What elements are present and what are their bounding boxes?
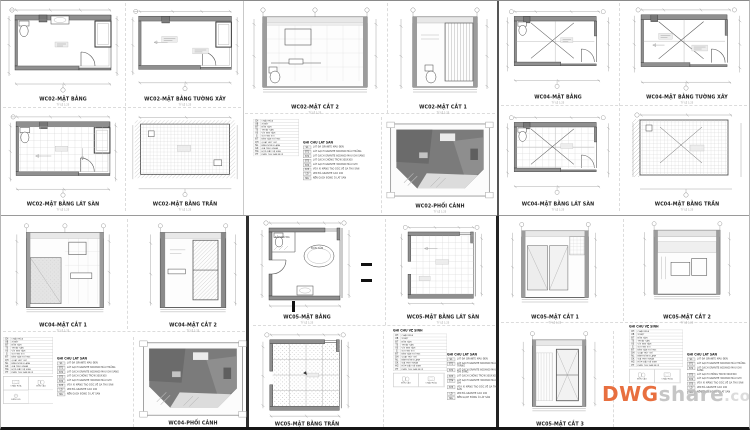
divider-vertical-right-top [497,1,499,216]
room-labels-overlay: TẮM ĐỨNG BỒN TẮM [257,218,357,312]
section-cut-mark [292,301,295,312]
svg-text:WC04-MẶT BẰNG: WC04-MẶT BẰNG [534,93,582,101]
watermark-suffix: share [659,382,725,406]
drawing-title: WC02-MẶT CẮT 2TỶ LỆ 1:25 [249,103,381,116]
svg-text:WC04-MẶT CẮT 2: WC04-MẶT CẮT 2 [169,321,217,329]
legend-title: GHI CHÚ VỆ SINH [393,329,447,332]
legend-title: GHI CHÚ LÁT SÀN [687,353,747,356]
cad-drawing-sheet: WC02-MẶT BẰNGTỶ LỆ 1:25 WC02-MẶT BẰNG TƯ… [0,0,750,430]
drawing-title: WC02-MẶT BẰNG TƯỜNG XÂYTỶ LỆ 1:25 [129,95,241,108]
legend-row: ST1LÁT GẠCH GRANITE 600X600 MÀU TRẮNG [687,362,747,365]
svg-text:TỶ LỆ 1:25: TỶ LỆ 1:25 [179,104,192,107]
legend-ve-sinh-table: CHCHẬU RỬAXBXÍ BỆTBTBỒN TẮMTSTHOÁT SÀNVS… [3,337,53,429]
legend-title: GHI CHÚ LÁT SÀN [57,357,133,360]
legend-row: PTPHỄU THU SÀN INOX [3,371,53,374]
cell-separator [385,219,386,325]
drawing-wc02-phoi-canh [385,119,495,201]
legend-lat-san: GHI CHÚ LÁT SÀN S1LÁT ĐÁ GRANITE MÀU ĐEN… [57,357,133,423]
legend-row: ST5VỮA XI MĂNG TẠO DỐC VỀ GA THU SÀN [447,386,499,391]
legend-ve-sinh: GHI CHÚ VỆ SINH CHCHẬU RỬAXBXÍ BỆTBTBỒN … [393,329,447,429]
legend-fixture-icons: BỒN CẦU CHẬU RỬA [393,373,445,387]
legend-row: ST2LÁT GẠCH GRANITE 600X600 MÀU GHI SÁNG [57,371,133,374]
svg-text:WC02-MẶT BẰNG TRẦN: WC02-MẶT BẰNG TRẦN [153,199,217,208]
legend-row: ST1LÁT GẠCH GRANITE 600X600 MÀU TRẮNG [303,150,379,153]
svg-text:WC05-MẶT CẮT 1: WC05-MẶT CẮT 1 [531,313,579,321]
legend-row: LDLEN ĐÁ GRANITE CAO 100 [447,392,499,395]
legend-lat-san: GHI CHÚ LÁT SÀN S1LÁT ĐÁ GRANITE MÀU ĐEN… [447,353,499,417]
section-cut-mark [361,279,372,282]
svg-text:TỶ LỆ 1:25: TỶ LỆ 1:25 [681,102,694,105]
svg-text:TỶ LỆ 1:25: TỶ LỆ 1:25 [57,209,70,212]
svg-text:WC05-MẶT BẰNG TRẦN: WC05-MẶT BẰNG TRẦN [275,419,339,428]
drawing-wc05-mat-cat-2 [637,219,737,313]
drawing-title: WC04-MẶT BẰNG LÁT SÀNTỶ LỆ 1:25 [503,200,613,213]
drawing-wc02-mat-bang-tuong-xay [129,6,241,94]
svg-text:TỶ LỆ 1:25: TỶ LỆ 1:25 [57,330,70,333]
svg-text:TỶ LỆ 1:25: TỶ LỆ 1:25 [549,322,562,325]
drawing-title: WC02-MẶT BẰNG LÁT SÀNTỶ LỆ 1:25 [5,200,121,213]
svg-text:TẮM ĐỨNG: TẮM ĐỨNG [275,234,290,239]
svg-text:TỶ LỆ 1:25: TỶ LỆ 1:25 [552,102,565,105]
legend-row: LDLEN ĐÁ GRANITE CAO 100 [303,172,379,175]
drawing-title: WC04-MẶT CẮT 1TỶ LỆ 1:25 [9,321,117,334]
legend-row: ST3LÁT GẠCH CHỐNG TRƠN 300X300 [687,373,747,376]
legend-row: ST3LÁT GẠCH CHỐNG TRƠN 300X300 [303,159,379,162]
svg-text:TỶ LỆ 1:25: TỶ LỆ 1:25 [437,322,450,325]
drawing-wc04-phoi-canh [137,339,249,419]
legend-row: ST1LÁT GẠCH GRANITE 600X600 MÀU TRẮNG [447,362,499,367]
svg-text:BỒN TẮM: BỒN TẮM [311,245,323,250]
drawing-wc02-mat-bang-lat-san [5,113,121,199]
svg-text:WC04-MẶT BẰNG LÁT SÀN: WC04-MẶT BẰNG LÁT SÀN [522,200,595,208]
legend-row: ST5VỮA XI MĂNG TẠO DỐC VỀ GA THU SÀN [303,168,379,171]
drawing-title: WC04-MẶT CẮT 2TỶ LỆ 1:25 [141,321,245,334]
legend-row: S1LÁT ĐÁ GRANITE MÀU ĐEN [57,362,133,365]
svg-text:WC05-MẶT BẰNG LÁT SÀN: WC05-MẶT BẰNG LÁT SÀN [407,313,480,321]
drawing-wc02-mat-cat-1 [393,5,493,103]
svg-text:WC05-MẶT CẮT 2: WC05-MẶT CẮT 2 [663,313,711,321]
cell-separator [133,337,134,427]
drawing-wc02-mat-cat-2 [249,5,381,103]
drawing-title: WC04-PHỐI CẢNHTỶ LỆ 1:25 [137,419,249,430]
svg-text:WC02-MẶT CẮT 2: WC02-MẶT CẮT 2 [291,103,339,111]
drawing-title: WC05-MẶT CẮT 1TỶ LỆ 1:25 [507,313,603,326]
legend-title: GHI CHÚ VỆ SINH [629,325,683,328]
drawing-title: WC05-MẶT CẮT 3TỶ LỆ 1:25 [517,420,603,430]
drawing-wc02-mat-bang [5,6,121,94]
legend-row: ST2LÁT GẠCH GRANITE 600X600 MÀU GHI SÁNG [687,367,747,372]
cell-separator [381,117,382,213]
svg-text:TỶ LỆ 1:25: TỶ LỆ 1:25 [552,209,565,212]
svg-text:WC02-MẶT CẮT 1: WC02-MẶT CẮT 1 [419,103,467,111]
drawing-title: WC04-MẶT BẰNG TRẦNTỶ LỆ 1:25 [626,200,748,213]
legend-ve-sinh: GHI CHÚ VỆ SINH CHCHẬU RỬAXBXÍ BỆTBTBỒN … [629,325,683,425]
drawing-wc05-mat-cat-1 [507,219,603,313]
drawing-wc05-mat-bang-lat-san [397,222,489,310]
legend-row: ST4LÁT GẠCH GRANITE 300X600 MÀU GHI [303,163,379,166]
svg-text:TỶ LỆ 1:25: TỶ LỆ 1:25 [57,104,70,107]
legend-row: ST4LÁT GẠCH GRANITE 300X600 MÀU GHI [57,379,133,382]
cell-separator [623,219,624,321]
dwgshare-watermark: DWGshare.com [602,381,750,407]
legend-row: ST2LÁT GẠCH GRANITE 600X600 MÀU GHI SÁNG [447,369,499,374]
svg-text:WC04-MẶT BẰNG TƯỜNG XÂY: WC04-MẶT BẰNG TƯỜNG XÂY [646,93,728,101]
legend-fixture-icons: CHẬU RỬA BỒN CẦU ĐÈN LED [3,376,53,404]
section-cut-mark [361,263,372,266]
legend-title: GHI CHÚ LÁT SÀN [447,353,499,356]
svg-text:WC02-MẶT BẰNG LÁT SÀN: WC02-MẶT BẰNG LÁT SÀN [27,200,100,208]
watermark-domain: .com [724,387,750,405]
svg-text:TỶ LỆ 1:25: TỶ LỆ 1:25 [301,322,314,325]
legend-row: LDLEN ĐÁ GRANITE CAO 100 [57,388,133,391]
drawing-wc04-mat-bang [503,6,613,92]
watermark-prefix: DWG [602,382,659,406]
drawing-wc05-mat-bang-tran [257,330,357,422]
legend-row: PTPHỄU THU SÀN INOX [253,153,299,156]
svg-text:WC04-MẶT BẰNG TRẦN: WC04-MẶT BẰNG TRẦN [655,199,719,208]
legend-row: ST5VỮA XI MĂNG TẠO DỐC VỀ GA THU SÀN [57,384,133,387]
legend-row: ST3LÁT GẠCH CHỐNG TRƠN 300X300 [447,375,499,378]
svg-text:WC02-MẶT BẰNG TƯỜNG XÂY: WC02-MẶT BẰNG TƯỜNG XÂY [144,95,226,103]
svg-text:TỶ LỆ 1:25: TỶ LỆ 1:25 [681,209,694,212]
cell-separator [387,3,388,113]
drawing-title: WC02-MẶT BẰNGTỶ LỆ 1:25 [5,95,121,108]
drawing-title: WC05-MẶT BẰNGTỶ LỆ 1:25 [257,313,357,326]
legend-row: S1LÁT ĐÁ GRANITE MÀU ĐEN [303,146,379,149]
svg-text:TỶ LỆ 1:25: TỶ LỆ 1:25 [437,112,450,115]
legend-row: NGNỀN GẠCH ĐÓNG Ô LÁT SÀN [447,396,499,399]
svg-text:WC04-MẶT CẮT 1: WC04-MẶT CẮT 1 [39,321,87,329]
legend-row: NGNỀN GẠCH ĐÓNG Ô LÁT SÀN [57,393,133,396]
svg-text:TỶ LỆ 1:25: TỶ LỆ 1:25 [434,211,447,214]
svg-text:WC05-MẶT BẰNG: WC05-MẶT BẰNG [283,313,331,321]
drawing-wc05-mat-cat-3 [517,329,603,421]
svg-text:TỶ LỆ 1:25: TỶ LỆ 1:25 [187,330,200,333]
drawing-wc04-mat-bang-tuong-xay [626,6,748,92]
legend-row: ST4LÁT GẠCH GRANITE 300X600 MÀU GHI [447,379,499,384]
legend-row: ST3LÁT GẠCH CHỐNG TRƠN 300X300 [57,375,133,378]
svg-text:TỶ LỆ 1:25: TỶ LỆ 1:25 [179,209,192,212]
drawing-title: WC04-MẶT BẰNGTỶ LỆ 1:25 [503,93,613,106]
svg-text:WC05-MẶT CẮT 3: WC05-MẶT CẮT 3 [536,420,584,428]
cell-separator [383,331,384,427]
legend-row: PTPHỄU THU SÀN INOX [629,364,683,367]
legend-title: GHI CHÚ LÁT SÀN [303,141,379,144]
divider-vertical-left-top [243,1,244,215]
svg-text:WC04-PHỐI CẢNH: WC04-PHỐI CẢNH [168,419,217,427]
legend-row: S1LÁT ĐÁ GRANITE MÀU ĐEN [687,358,747,361]
legend-row: ST2LÁT GẠCH GRANITE 600X600 MÀU GHI SÁNG [303,155,379,158]
drawing-wc04-mat-cat-1 [9,221,117,321]
divider-horizontal-main [1,215,750,216]
drawing-wc04-mat-cat-2 [141,221,245,321]
legend-row: PTPHỄU THU SÀN INOX [393,368,447,371]
drawing-title: WC02-MẶT BẰNG TRẦNTỶ LỆ 1:25 [129,200,241,213]
cell-separator [613,331,614,427]
svg-text:WC02-MẶT BẰNG: WC02-MẶT BẰNG [39,95,87,103]
svg-text:TỶ LỆ 1:25: TỶ LỆ 1:25 [309,112,322,115]
drawing-wc04-mat-bang-lat-san [503,111,613,199]
legend-row: NGNỀN GẠCH ĐÓNG Ô LÁT SÀN [303,177,379,180]
legend-row: S1LÁT ĐÁ GRANITE MÀU ĐEN [447,358,499,361]
cell-separator [619,3,620,211]
drawing-title: WC02-MẶT CẮT 1TỶ LỆ 1:25 [393,103,493,116]
drawing-title: WC02-PHỐI CẢNHTỶ LỆ 1:25 [385,202,495,215]
drawing-wc04-mat-bang-tran [626,111,748,199]
drawing-title: WC05-MẶT BẰNG LÁT SÀNTỶ LỆ 1:25 [397,313,489,326]
legend-lat-san: GHI CHÚ LÁT SÀN S1LÁT ĐÁ GRANITE MÀU ĐEN… [303,141,379,207]
legend-row: ST1LÁT GẠCH GRANITE 600X600 MÀU TRẮNG [57,366,133,369]
drawing-title: WC05-MẶT BẰNG TRẦNTỶ LỆ 1:25 [257,420,357,430]
legend-ve-sinh-table: CHCHẬU RỬAXBXÍ BỆTBTBỒN TẮMTSTHOÁT SÀNVS… [253,119,299,207]
svg-text:WC02-PHỐI CẢNH: WC02-PHỐI CẢNH [415,202,464,210]
drawing-wc02-mat-bang-tran [129,113,241,199]
cell-separator [127,219,128,329]
drawing-title: WC04-MẶT BẰNG TƯỜNG XÂYTỶ LỆ 1:25 [626,93,748,106]
